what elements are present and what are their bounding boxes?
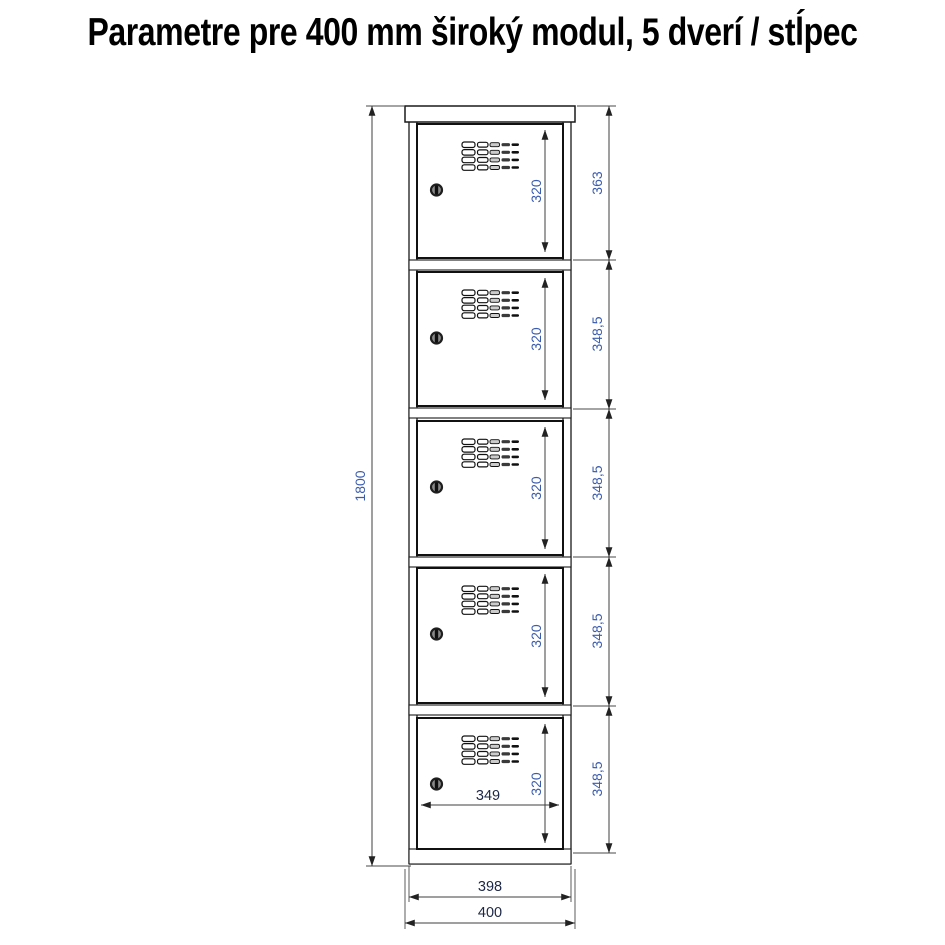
segment-1-label: 363	[589, 171, 605, 195]
cabinet: 320 320 320	[405, 106, 575, 864]
segment-2-label: 348,5	[589, 316, 605, 351]
door-5-inner-height-label: 320	[528, 772, 544, 796]
body-width-label: 398	[478, 879, 502, 895]
shelf-divider	[409, 260, 571, 270]
door-1-inner-height-label: 320	[528, 179, 544, 203]
locker-diagram: 320 320 320	[0, 0, 945, 945]
lock-icon	[430, 331, 443, 344]
segment-3-label: 348,5	[589, 465, 605, 500]
lock-icon	[430, 777, 443, 790]
door-5-inner-width-label: 349	[476, 788, 500, 804]
door-4-inner-height-label: 320	[528, 624, 544, 648]
door-3-inner-height-label: 320	[528, 476, 544, 500]
overall-width-label: 400	[478, 905, 502, 921]
cabinet-bottom-strip	[409, 849, 571, 864]
segment-4-label: 348,5	[589, 613, 605, 648]
lock-icon	[430, 183, 443, 196]
lock-icon	[430, 480, 443, 493]
segment-5-label: 348,5	[589, 761, 605, 796]
shelf-divider	[409, 705, 571, 715]
shelf-divider	[409, 557, 571, 567]
bottom-width-dimensions: 398 400	[405, 866, 575, 929]
door-3: 320	[417, 421, 563, 555]
lock-icon	[430, 627, 443, 640]
door-1: 320	[417, 124, 563, 258]
shelf-divider	[409, 408, 571, 418]
overall-height-dimension: 1800	[352, 106, 411, 866]
door-2-inner-height-label: 320	[528, 327, 544, 351]
door-4: 320	[417, 568, 563, 703]
cabinet-top-panel	[405, 106, 575, 122]
page: Parametre pre 400 mm široký modul, 5 dve…	[0, 0, 945, 945]
overall-height-label: 1800	[352, 470, 368, 501]
door-5: 320 349	[417, 718, 563, 849]
section-height-dimensions: 363 348,5 348,5 348,5 348,5	[573, 106, 616, 853]
door-2: 320	[417, 272, 563, 406]
